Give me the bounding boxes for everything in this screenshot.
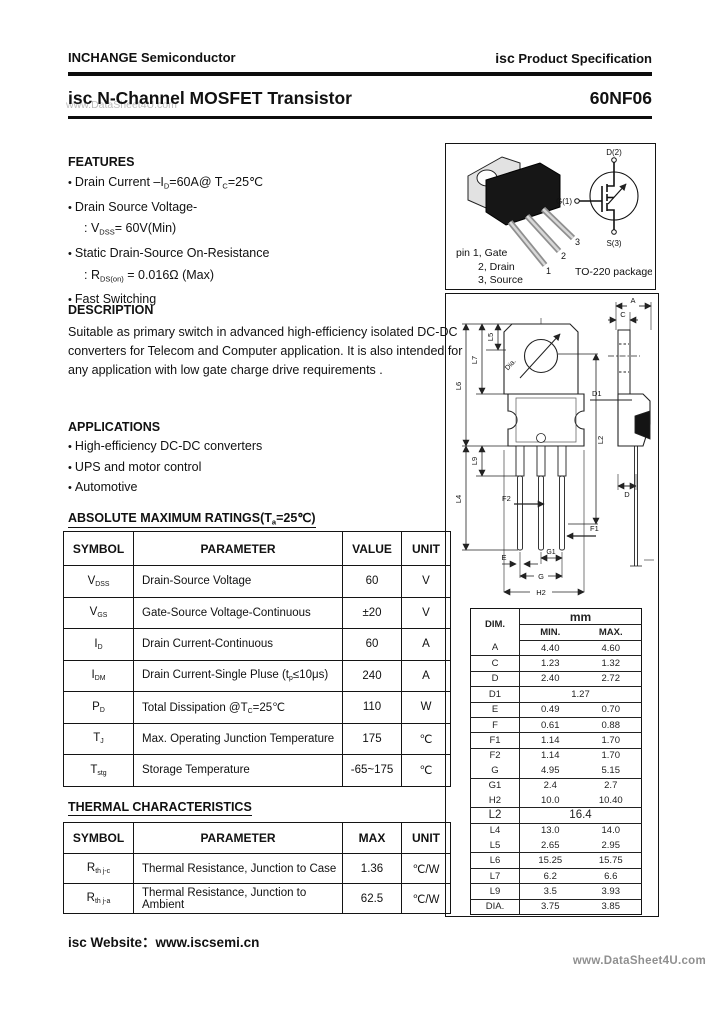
- table-row: IDMDrain Current-Single Pluse (tp≤10μs)2…: [64, 660, 451, 692]
- features-heading: FEATURES: [68, 155, 468, 169]
- cell-unit: W: [402, 692, 451, 724]
- col-max: MAX: [343, 823, 402, 854]
- table-row: VGSGate-Source Voltage-Continuous±20V: [64, 597, 451, 629]
- cell-value: 110: [343, 692, 402, 724]
- absmax-heading: ABSOLUTE MAXIMUM RATINGS(Ta=25℃): [68, 510, 316, 528]
- title-rule: [68, 116, 652, 119]
- cell-dim: F: [471, 717, 520, 732]
- pin-assignment: pin 1, Gate 2, Drain 3, Source: [456, 247, 523, 286]
- table-row: TJMax. Operating Junction Temperature175…: [64, 723, 451, 755]
- spec-label: isc Product Specification: [495, 50, 652, 66]
- applications-section: APPLICATIONS High-efficiency DC-DC conve…: [68, 420, 468, 499]
- dimensions-table: DIM. mm MIN. MAX. A4.404.60C1.231.32D2.4…: [470, 608, 642, 915]
- table-row: VDSSDrain-Source Voltage60V: [64, 566, 451, 598]
- col-max: MAX.: [581, 625, 642, 641]
- pin-label-1: pin 1, Gate: [456, 247, 508, 259]
- cell-dim: D1: [471, 687, 520, 702]
- absmax-table: SYMBOL PARAMETER VALUE UNIT VDSSDrain-So…: [63, 531, 451, 787]
- cell-max: 1.70: [581, 733, 642, 748]
- cell-value: -65~175: [343, 755, 402, 787]
- table-row: G12.42.7: [471, 778, 642, 793]
- cell-symbol: Rth j-c: [64, 854, 134, 884]
- label-C: C: [620, 310, 626, 319]
- col-min: MIN.: [520, 625, 581, 641]
- side-view: [590, 302, 654, 566]
- cell-dim: L2: [471, 808, 520, 823]
- table-row: H210.010.40: [471, 793, 642, 808]
- cell-min: 10.0: [520, 793, 581, 808]
- table-row: E0.490.70: [471, 702, 642, 717]
- cell-parameter: Total Dissipation @TC=25℃: [134, 692, 343, 724]
- col-symbol: SYMBOL: [64, 823, 134, 854]
- label-L6: L6: [454, 382, 463, 390]
- cell-min: 6.2: [520, 868, 581, 883]
- table-row: PDTotal Dissipation @TC=25℃110W: [64, 692, 451, 724]
- table-row: TstgStorage Temperature-65~175℃: [64, 755, 451, 787]
- table-row: L615.2515.75: [471, 853, 642, 868]
- cell-symbol: Rth j-a: [64, 884, 134, 914]
- cell-max: 5.15: [581, 763, 642, 778]
- col-mm: mm: [520, 609, 642, 625]
- table-row: IDDrain Current-Continuous60A: [64, 629, 451, 661]
- table-row: F21.141.70: [471, 748, 642, 763]
- cell-min: 13.0: [520, 823, 581, 838]
- description-text: Suitable as primary switch in advanced h…: [68, 323, 470, 380]
- cell-min: 1.14: [520, 748, 581, 763]
- cell-parameter: Max. Operating Junction Temperature: [134, 723, 343, 755]
- applications-heading: APPLICATIONS: [68, 420, 468, 434]
- cell-dim: L7: [471, 868, 520, 883]
- table-header-row: SYMBOL PARAMETER MAX UNIT: [64, 823, 451, 854]
- label-H2: H2: [536, 588, 546, 597]
- table-header-row: DIM. mm: [471, 609, 642, 625]
- cell-max: 3.93: [581, 884, 642, 899]
- table-row: L76.26.6: [471, 868, 642, 883]
- cell-symbol: VGS: [64, 597, 134, 629]
- table-row: L93.53.93: [471, 884, 642, 899]
- table-row: G4.955.15: [471, 763, 642, 778]
- cell-min: 3.75: [520, 899, 581, 914]
- description-section: DESCRIPTION Suitable as primary switch i…: [68, 303, 470, 380]
- cell-unit: ℃: [402, 723, 451, 755]
- col-value: VALUE: [343, 532, 402, 566]
- list-item: Automotive: [68, 478, 468, 499]
- cell-parameter: Thermal Resistance, Junction to Case: [134, 854, 343, 884]
- table-row: L52.652.95: [471, 838, 642, 853]
- lead-number-3: 3: [575, 237, 580, 247]
- list-item: Static Drain-Source On-Resistance: [68, 243, 468, 265]
- label-L2: L2: [596, 436, 605, 444]
- cell-parameter: Gate-Source Voltage-Continuous: [134, 597, 343, 629]
- cell-symbol: IDM: [64, 660, 134, 692]
- table-row: C1.231.32: [471, 656, 642, 671]
- cell-max: 4.60: [581, 641, 642, 656]
- source-label: S(3): [606, 239, 621, 248]
- pin-label-3: 3, Source: [478, 274, 523, 286]
- cell-min: 15.25: [520, 853, 581, 868]
- cell-min: 1.27: [520, 687, 642, 702]
- outline-drawing: L5 L7 L6 L9 L4 L2 Dia. F2 F1 E G1 G H2 A…: [446, 294, 655, 606]
- title-row: isc N-Channel MOSFET Transistor 60NF06: [68, 88, 652, 109]
- package-illustration: 1 2 3 pin 1, Gate 2, Drain 3, Source: [446, 144, 652, 286]
- cell-dim: G: [471, 763, 520, 778]
- cell-dim: G1: [471, 778, 520, 793]
- list-item: UPS and motor control: [68, 458, 468, 479]
- cell-max: 2.7: [581, 778, 642, 793]
- cell-unit: ℃: [402, 755, 451, 787]
- cell-min: 1.23: [520, 656, 581, 671]
- cell-unit: A: [402, 660, 451, 692]
- label-F1: F1: [590, 524, 599, 533]
- cell-max: 14.0: [581, 823, 642, 838]
- cell-value: 60: [343, 566, 402, 598]
- page-title: isc N-Channel MOSFET Transistor: [68, 88, 352, 109]
- pin-label-2: 2, Drain: [478, 261, 515, 273]
- cell-min: 1.14: [520, 733, 581, 748]
- cell-value: ±20: [343, 597, 402, 629]
- cell-max: 10.40: [581, 793, 642, 808]
- cell-min: 2.4: [520, 778, 581, 793]
- cell-dim: D: [471, 671, 520, 686]
- col-parameter: PARAMETER: [134, 823, 343, 854]
- label-L4: L4: [454, 495, 463, 503]
- cell-value: 62.5: [343, 884, 402, 914]
- cell-min: 2.40: [520, 671, 581, 686]
- outline-box: L5 L7 L6 L9 L4 L2 Dia. F2 F1 E G1 G H2 A…: [445, 293, 659, 917]
- cell-max: 1.32: [581, 656, 642, 671]
- list-item: Drain Source Voltage-: [68, 197, 468, 219]
- cell-dim: DIA.: [471, 899, 520, 914]
- col-dim: DIM.: [471, 609, 520, 641]
- list-item: : VDSS= 60V(Min): [68, 218, 468, 243]
- package-box: 1 2 3 pin 1, Gate 2, Drain 3, Source: [445, 143, 656, 290]
- table-row: D2.402.72: [471, 671, 642, 686]
- lead-number-1: 1: [546, 266, 551, 276]
- label-G1: G1: [546, 549, 555, 556]
- cell-symbol: TJ: [64, 723, 134, 755]
- label-L9: L9: [470, 457, 479, 465]
- label-F2: F2: [502, 494, 511, 503]
- table-row: F0.610.88: [471, 717, 642, 732]
- cell-dim: L5: [471, 838, 520, 853]
- part-number: 60NF06: [590, 88, 652, 109]
- cell-dim: L9: [471, 884, 520, 899]
- applications-list: High-efficiency DC-DC convertersUPS and …: [68, 437, 468, 499]
- cell-symbol: ID: [64, 629, 134, 661]
- brand-label: isc: [495, 50, 514, 66]
- label-D1: D1: [592, 389, 602, 398]
- cell-dim: C: [471, 656, 520, 671]
- cell-min: 0.61: [520, 717, 581, 732]
- lead-number-2: 2: [561, 251, 566, 261]
- table-row: A4.404.60: [471, 641, 642, 656]
- cell-min: 3.5: [520, 884, 581, 899]
- cell-max: 0.88: [581, 717, 642, 732]
- cell-dim: L6: [471, 853, 520, 868]
- cell-min: 0.49: [520, 702, 581, 717]
- thermal-heading: THERMAL CHARACTERISTICS: [68, 800, 252, 816]
- table-row: Rth j-aThermal Resistance, Junction to A…: [64, 884, 451, 914]
- col-symbol: SYMBOL: [64, 532, 134, 566]
- cell-dim: F2: [471, 748, 520, 763]
- cell-min: 16.4: [520, 808, 642, 823]
- thermal-table: SYMBOL PARAMETER MAX UNIT Rth j-cThermal…: [63, 822, 451, 914]
- cell-max: 3.85: [581, 899, 642, 914]
- front-view: [504, 318, 584, 552]
- cell-min: 4.40: [520, 641, 581, 656]
- table-row: L413.014.0: [471, 823, 642, 838]
- table-row: DIA.3.753.85: [471, 899, 642, 914]
- cell-min: 4.95: [520, 763, 581, 778]
- list-item: Drain Current –ID=60A@ TC=25℃: [68, 172, 468, 197]
- cell-symbol: VDSS: [64, 566, 134, 598]
- cell-value: 240: [343, 660, 402, 692]
- table-row: D11.27: [471, 687, 642, 702]
- datasheet-page: INCHANGE Semiconductor isc Product Speci…: [0, 0, 720, 1012]
- cell-unit: V: [402, 597, 451, 629]
- label-E: E: [501, 553, 506, 562]
- features-list: Drain Current –ID=60A@ TC=25℃Drain Sourc…: [68, 172, 468, 311]
- cell-max: 2.95: [581, 838, 642, 853]
- cell-parameter: Drain Current-Continuous: [134, 629, 343, 661]
- cell-value: 1.36: [343, 854, 402, 884]
- table-row: L216.4: [471, 808, 642, 823]
- label-G: G: [538, 572, 544, 581]
- cell-unit: ℃/W: [402, 884, 451, 914]
- col-parameter: PARAMETER: [134, 532, 343, 566]
- cell-parameter: Thermal Resistance, Junction to Ambient: [134, 884, 343, 914]
- col-unit: UNIT: [402, 823, 451, 854]
- cell-parameter: Drain Current-Single Pluse (tp≤10μs): [134, 660, 343, 692]
- header-rule: [68, 72, 652, 76]
- cell-dim: F1: [471, 733, 520, 748]
- company-name: INCHANGE Semiconductor: [68, 50, 236, 65]
- label-D: D: [624, 490, 630, 499]
- cell-symbol: PD: [64, 692, 134, 724]
- table-header-row: SYMBOL PARAMETER VALUE UNIT: [64, 532, 451, 566]
- description-heading: DESCRIPTION: [68, 303, 470, 317]
- cell-min: 2.65: [520, 838, 581, 853]
- cell-max: 1.70: [581, 748, 642, 763]
- cell-value: 175: [343, 723, 402, 755]
- cell-max: 15.75: [581, 853, 642, 868]
- list-item: : RDS(on) = 0.016Ω (Max): [68, 265, 468, 290]
- gate-label: G(1): [556, 197, 572, 206]
- cell-value: 60: [343, 629, 402, 661]
- cell-max: 2.72: [581, 671, 642, 686]
- watermark-bottom: www.DataSheet4U.com: [573, 955, 706, 967]
- spec-text: Product Specification: [518, 51, 652, 66]
- cell-parameter: Storage Temperature: [134, 755, 343, 787]
- label-L5: L5: [486, 333, 495, 341]
- list-item: High-efficiency DC-DC converters: [68, 437, 468, 458]
- cell-dim: E: [471, 702, 520, 717]
- cell-dim: A: [471, 641, 520, 656]
- cell-unit: V: [402, 566, 451, 598]
- col-unit: UNIT: [402, 532, 451, 566]
- cell-max: 6.6: [581, 868, 642, 883]
- table-row: Rth j-cThermal Resistance, Junction to C…: [64, 854, 451, 884]
- package-name: TO-220 package: [575, 266, 652, 278]
- cell-parameter: Drain-Source Voltage: [134, 566, 343, 598]
- label-L7: L7: [470, 356, 479, 364]
- cell-dim: H2: [471, 793, 520, 808]
- label-A: A: [630, 296, 635, 305]
- cell-symbol: Tstg: [64, 755, 134, 787]
- cell-max: 0.70: [581, 702, 642, 717]
- cell-unit: A: [402, 629, 451, 661]
- table-row: F11.141.70: [471, 733, 642, 748]
- cell-dim: L4: [471, 823, 520, 838]
- website-link: isc Website：www.iscsemi.cn: [68, 931, 259, 951]
- features-section: FEATURES Drain Current –ID=60A@ TC=25℃Dr…: [68, 155, 468, 311]
- drain-label: D(2): [606, 148, 622, 157]
- cell-unit: ℃/W: [402, 854, 451, 884]
